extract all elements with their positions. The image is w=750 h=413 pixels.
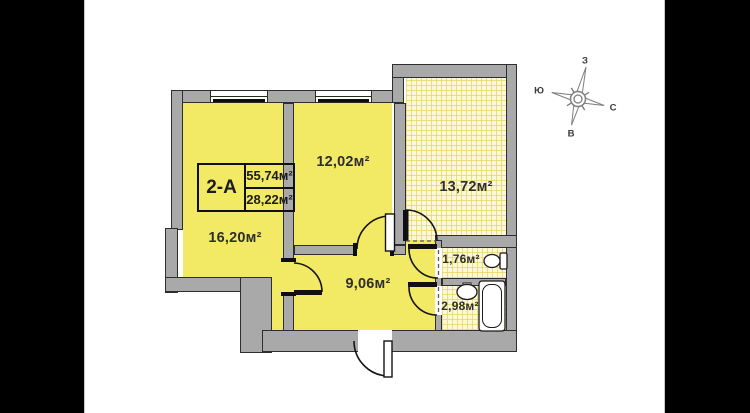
area-label-living: 16,20м² (208, 230, 261, 246)
unit-living-area: 28,22м² (246, 189, 293, 211)
door-arc-wc (409, 249, 438, 278)
toilet-icon (484, 253, 507, 269)
door-arc-terrace (406, 210, 437, 241)
unit-info-card: 2-А 55,74м² 28,22м² (197, 163, 295, 212)
compass-east-label: В (568, 129, 575, 140)
plan-linework (0, 0, 750, 413)
compass-rose (552, 67, 604, 125)
area-label-wc: 1,76м² (442, 252, 479, 266)
door-leaf-living (294, 290, 322, 295)
area-label-bathroom: 2,98м² (441, 299, 478, 313)
door-leaf-entrance (384, 341, 392, 377)
door-leaf-bathroom (408, 282, 437, 287)
unit-code: 2-А (199, 165, 246, 210)
area-label-terrace: 13,72м² (439, 179, 492, 195)
compass-west-label: З (582, 56, 588, 67)
sink-icon (457, 283, 477, 300)
door-arc-bathroom (409, 287, 437, 315)
area-label-bedroom: 12,02м² (316, 154, 369, 170)
unit-total-area: 55,74м² (246, 165, 293, 189)
compass-north-label: С (610, 103, 617, 114)
area-label-hallway: 9,06м² (346, 276, 391, 292)
floor-plan: 16,20м² 12,02м² 13,72м² 9,06м² 1,76м² 2,… (0, 0, 750, 413)
video-frame: 16,20м² 12,02м² 13,72м² 9,06м² 1,76м² 2,… (0, 0, 750, 413)
door-leaf-wc (408, 244, 437, 249)
door-leaf-terrace (403, 210, 409, 241)
door-arc-living (294, 263, 322, 292)
bathtub-icon (479, 281, 505, 331)
compass-south-label: Ю (534, 86, 544, 97)
door-leaf-bedroom (386, 214, 395, 251)
